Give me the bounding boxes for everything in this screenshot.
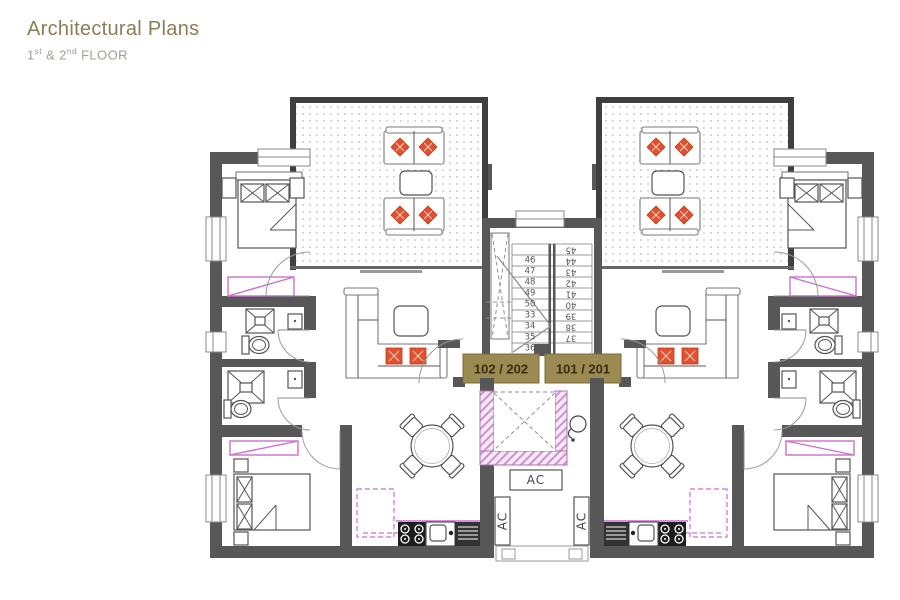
dishwasher: [455, 522, 481, 546]
stair-step-number: 39: [566, 311, 577, 321]
unit-left: [206, 97, 494, 558]
stair-step-number: 37: [566, 333, 577, 343]
stair-step-number: 35: [525, 333, 536, 343]
stair-rail: [549, 244, 552, 356]
window-left-bedroom: [206, 217, 226, 261]
dining-set: [399, 413, 464, 478]
kitchen: [357, 489, 481, 546]
stair-step-number: 50: [525, 300, 536, 310]
window-lower-bedroom: [206, 475, 226, 522]
corner-sofa: [346, 294, 442, 378]
unit-number-right: 101 / 201: [556, 362, 610, 377]
unit-number-left: 102 / 202: [474, 362, 528, 377]
nightstand: [234, 532, 248, 545]
stair-step-number: 44: [566, 256, 577, 266]
balcony-sliding-door-track: [290, 266, 484, 269]
stair-step-number: 36: [525, 344, 536, 354]
toilet: [242, 336, 269, 354]
stair-step-number: 47: [525, 267, 536, 277]
toilet: [224, 400, 251, 418]
window-bathroom: [206, 332, 226, 352]
stair-step-number: 41: [566, 289, 577, 299]
elevator-shaft: [480, 391, 567, 465]
upper-cabinets: [357, 489, 394, 537]
pump-symbol: [568, 416, 586, 442]
living-room: [344, 288, 447, 378]
balcony: [290, 97, 488, 273]
bathroom-2: [224, 371, 310, 430]
sofa-cushion: [386, 348, 402, 364]
light-well: [491, 233, 509, 339]
court-wall-right: [590, 378, 604, 546]
balcony-sliding-door-panel: [360, 270, 422, 273]
coffee-table: [394, 306, 428, 336]
bedroom-bottom: [230, 431, 340, 545]
stair-step-number: 38: [566, 322, 577, 332]
balcony-coffee-table: [400, 171, 432, 195]
bathroom-1: [242, 309, 310, 362]
ac-label-left: AC: [496, 512, 510, 530]
stair-step-number: 46: [525, 256, 536, 266]
stair-step-number: 45: [566, 245, 577, 255]
ac-label-right: AC: [575, 512, 589, 530]
stair-step-number: 42: [566, 278, 577, 288]
sofa-cushion: [410, 348, 426, 364]
unit-right-mirrored: [590, 97, 878, 558]
architectural-plan-page: Architectural Plans 1st & 2nd FLOOR: [0, 0, 900, 600]
nightstand: [222, 178, 236, 198]
door-arc: [278, 330, 310, 362]
floor-plan: 46 47 48 49 50 33 34 35 36 45 44 43 42 4…: [0, 0, 900, 600]
nightstand: [234, 459, 248, 472]
nightstand: [290, 178, 304, 198]
ac-court: AC AC AC: [495, 470, 589, 561]
stair-step-number: 49: [525, 289, 536, 299]
door-arc: [302, 431, 340, 469]
stair-step-number: 34: [525, 322, 536, 332]
stair-step-number: 48: [525, 278, 536, 288]
faucet: [449, 531, 453, 535]
stair-step-number: 33: [525, 311, 536, 321]
balcony-sofa-upper: [384, 127, 444, 164]
ac-label-top: AC: [527, 473, 545, 487]
stair-step-number: 40: [566, 300, 577, 310]
stair-step-number: 43: [566, 267, 577, 277]
balcony-sofa-lower: [384, 198, 444, 235]
